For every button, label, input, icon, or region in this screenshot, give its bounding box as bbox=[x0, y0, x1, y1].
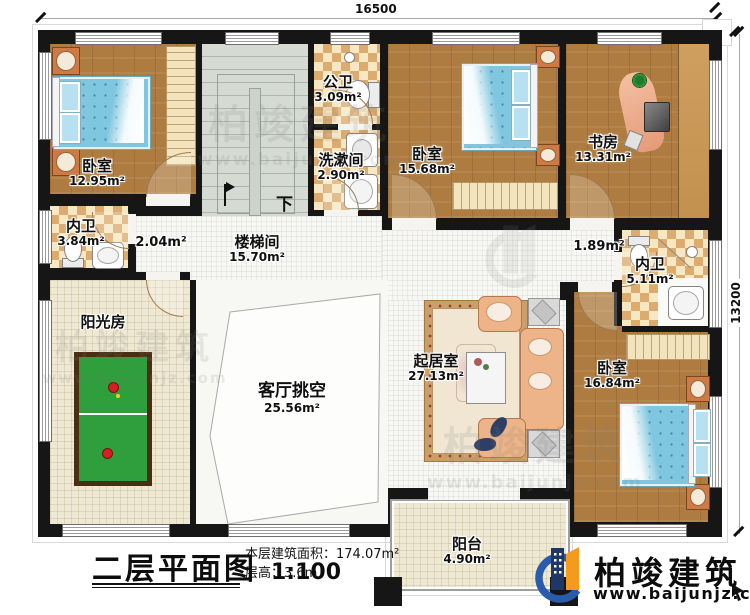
door-opening bbox=[392, 218, 436, 230]
room-area: 15.68m² bbox=[382, 163, 472, 177]
ensuite-right-bottom-wall bbox=[622, 326, 708, 332]
wardrobe bbox=[166, 46, 196, 166]
bedroom3-label: 卧室 16.84m² bbox=[567, 360, 657, 391]
room-name: 内卫 bbox=[615, 256, 685, 273]
door-opening bbox=[570, 218, 614, 230]
room-area: 2.04m² bbox=[126, 236, 196, 251]
room-area: 13.31m² bbox=[558, 151, 648, 165]
faucet-icon bbox=[344, 52, 355, 63]
window bbox=[62, 524, 170, 537]
nightstand bbox=[686, 376, 710, 402]
sofa-pillow bbox=[528, 372, 552, 390]
room-name: 内卫 bbox=[46, 218, 116, 235]
side-table bbox=[528, 298, 560, 326]
living-label: 起居室 27.13m² bbox=[391, 353, 481, 384]
title-underline bbox=[92, 583, 240, 585]
window bbox=[39, 300, 52, 442]
ensuite-left-label: 内卫 3.84m² bbox=[46, 218, 116, 249]
bed-headboard bbox=[52, 77, 60, 147]
nightstand bbox=[686, 484, 710, 510]
window bbox=[75, 32, 162, 45]
room-name: 洗漱间 bbox=[304, 152, 378, 169]
bed-pillow bbox=[60, 82, 80, 112]
window bbox=[228, 524, 350, 537]
balcony-doorway bbox=[428, 486, 520, 500]
study-label: 书房 13.31m² bbox=[558, 134, 648, 165]
room-name: 卧室 bbox=[52, 158, 142, 175]
dimension-tick bbox=[709, 2, 720, 13]
window bbox=[597, 524, 687, 537]
hall-right-area-label: 1.89m² bbox=[564, 240, 634, 255]
nightstand bbox=[536, 46, 560, 68]
office-chair bbox=[644, 102, 670, 132]
room-area: 3.84m² bbox=[46, 235, 116, 249]
window bbox=[597, 32, 662, 45]
floor-plan: 16500 13200 bbox=[0, 0, 750, 615]
bed-pillow bbox=[512, 70, 530, 104]
room-name: 公卫 bbox=[303, 74, 373, 91]
room-name: 起居室 bbox=[391, 353, 481, 370]
public-bath-label: 公卫 3.09m² bbox=[303, 74, 373, 105]
ensuite-right-label: 内卫 5.11m² bbox=[615, 256, 685, 287]
study-rug-strip bbox=[678, 44, 709, 218]
top-dimension-value: 16500 bbox=[352, 2, 400, 16]
room-area: 25.56m² bbox=[242, 402, 342, 416]
floor-height-text: 层高：3.6m bbox=[245, 565, 399, 584]
nightstand bbox=[536, 144, 560, 166]
bed-pillow bbox=[60, 113, 80, 143]
hall-left-area-label: 2.04m² bbox=[126, 236, 196, 251]
stair-stringer bbox=[249, 88, 261, 216]
window bbox=[709, 60, 722, 150]
living-void-label: 客厅挑空 25.56m² bbox=[242, 382, 342, 415]
room-area: 2.90m² bbox=[304, 169, 378, 183]
brand-logo-icon bbox=[534, 542, 590, 604]
sink bbox=[668, 286, 704, 320]
bedroom2-label: 卧室 15.68m² bbox=[382, 146, 472, 177]
bed-blanket-fold bbox=[622, 406, 664, 480]
plant-icon bbox=[633, 74, 646, 87]
bedroom1-label: 卧室 12.95m² bbox=[52, 158, 142, 189]
room-area: 3.09m² bbox=[303, 91, 373, 105]
window bbox=[39, 52, 52, 140]
drawing-title: 二层平面图 bbox=[92, 544, 257, 588]
bed-pillow bbox=[694, 410, 710, 442]
room-name: 卧室 bbox=[382, 146, 472, 163]
window bbox=[709, 396, 722, 488]
room-name: 卧室 bbox=[567, 360, 657, 377]
stair-direction-label: 下 bbox=[276, 190, 293, 215]
window bbox=[225, 32, 279, 45]
table-tennis-table bbox=[74, 352, 152, 486]
room-area: 1.89m² bbox=[564, 240, 634, 255]
table-tennis-paddle bbox=[102, 448, 113, 459]
balcony-label: 阳台 4.90m² bbox=[422, 536, 512, 567]
shower-drain-icon bbox=[686, 246, 698, 258]
top-dimension-line bbox=[40, 18, 718, 19]
window bbox=[709, 240, 722, 328]
room-area: 15.70m² bbox=[212, 251, 302, 265]
stairwell-label: 楼梯间 15.70m² bbox=[212, 234, 302, 265]
window bbox=[432, 32, 520, 45]
door-opening bbox=[146, 272, 180, 280]
nightstand bbox=[52, 47, 80, 75]
room-area: 5.11m² bbox=[615, 273, 685, 287]
wardrobe bbox=[626, 334, 710, 360]
wardrobe bbox=[452, 182, 558, 210]
bed-blanket-fold bbox=[464, 66, 506, 144]
sofa-pillow bbox=[528, 338, 552, 356]
stair-down-arrow-head bbox=[226, 182, 235, 192]
floor-area-text: 本层建筑面积：174.07m² bbox=[245, 546, 399, 565]
bed-blanket-fold bbox=[100, 79, 144, 143]
room-area: 27.13m² bbox=[391, 370, 481, 384]
room-name: 阳光房 bbox=[58, 314, 148, 331]
window bbox=[330, 32, 370, 45]
washroom-label: 洗漱间 2.90m² bbox=[304, 152, 378, 183]
right-dimension-value: 13200 bbox=[729, 279, 743, 327]
room-name: 书房 bbox=[558, 134, 648, 151]
armchair-cushion bbox=[486, 302, 512, 322]
bed-pillow bbox=[694, 444, 710, 476]
title-underline bbox=[92, 587, 240, 588]
room-name: 阳台 bbox=[422, 536, 512, 553]
brand-website: www.baijunjz.com bbox=[593, 584, 750, 603]
side-table bbox=[528, 430, 560, 458]
watermark-logo-icon bbox=[484, 214, 548, 294]
table-flowers-icon bbox=[483, 364, 489, 370]
room-name: 楼梯间 bbox=[212, 234, 302, 251]
table-tennis-ball bbox=[116, 394, 120, 398]
floor-info: 本层建筑面积：174.07m² 层高：3.6m bbox=[245, 546, 399, 584]
table-tennis-paddle bbox=[108, 382, 119, 393]
room-area: 12.95m² bbox=[52, 175, 142, 189]
door-opening bbox=[578, 282, 612, 292]
cursor-arrow-icon bbox=[731, 584, 745, 602]
room-area: 4.90m² bbox=[422, 553, 512, 567]
bed-pillow bbox=[512, 106, 530, 140]
table-tennis-net-line bbox=[79, 413, 147, 415]
room-name: 客厅挑空 bbox=[242, 382, 342, 402]
hall-floor bbox=[556, 230, 614, 282]
sunroom-label: 阳光房 bbox=[58, 314, 148, 331]
room-area: 16.84m² bbox=[567, 377, 657, 391]
bed-headboard bbox=[530, 64, 538, 148]
